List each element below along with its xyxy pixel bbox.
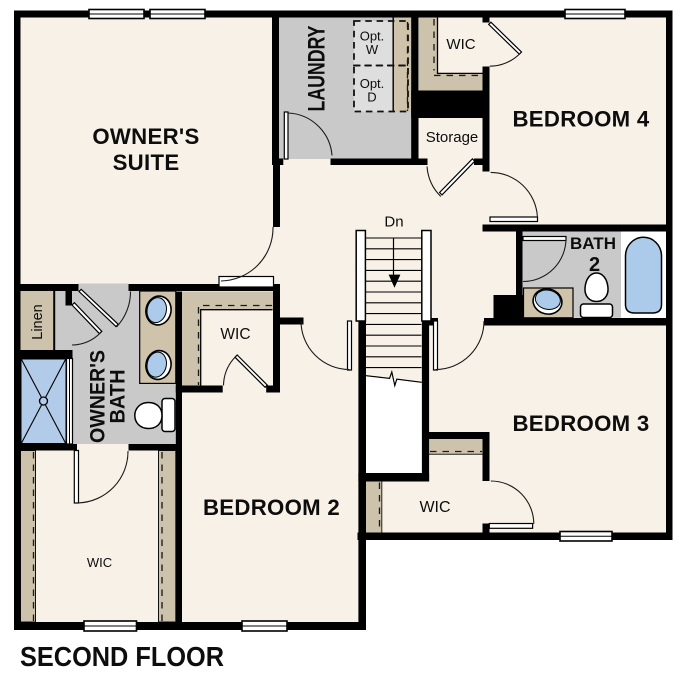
- svg-text:Linen: Linen: [30, 304, 46, 339]
- svg-text:D: D: [367, 90, 376, 105]
- svg-text:W: W: [366, 42, 379, 57]
- svg-text:OWNER'S: OWNER'S: [92, 124, 199, 149]
- svg-text:BEDROOM 4: BEDROOM 4: [512, 107, 649, 132]
- svg-text:Storage: Storage: [426, 129, 479, 146]
- svg-text:Dn: Dn: [384, 213, 403, 230]
- svg-text:SECOND FLOOR: SECOND FLOOR: [20, 641, 224, 672]
- svg-text:BATH: BATH: [570, 234, 616, 253]
- svg-text:BEDROOM 3: BEDROOM 3: [512, 411, 649, 436]
- svg-text:WIC: WIC: [220, 326, 250, 343]
- svg-text:LAUNDRY: LAUNDRY: [304, 26, 331, 112]
- svg-text:WIC: WIC: [446, 36, 475, 53]
- svg-text:WIC: WIC: [87, 555, 112, 570]
- svg-text:2: 2: [589, 254, 600, 276]
- svg-text:WIC: WIC: [419, 499, 450, 516]
- svg-text:SUITE: SUITE: [113, 150, 180, 175]
- svg-text:BATH: BATH: [106, 370, 130, 424]
- svg-text:BEDROOM 2: BEDROOM 2: [203, 495, 340, 520]
